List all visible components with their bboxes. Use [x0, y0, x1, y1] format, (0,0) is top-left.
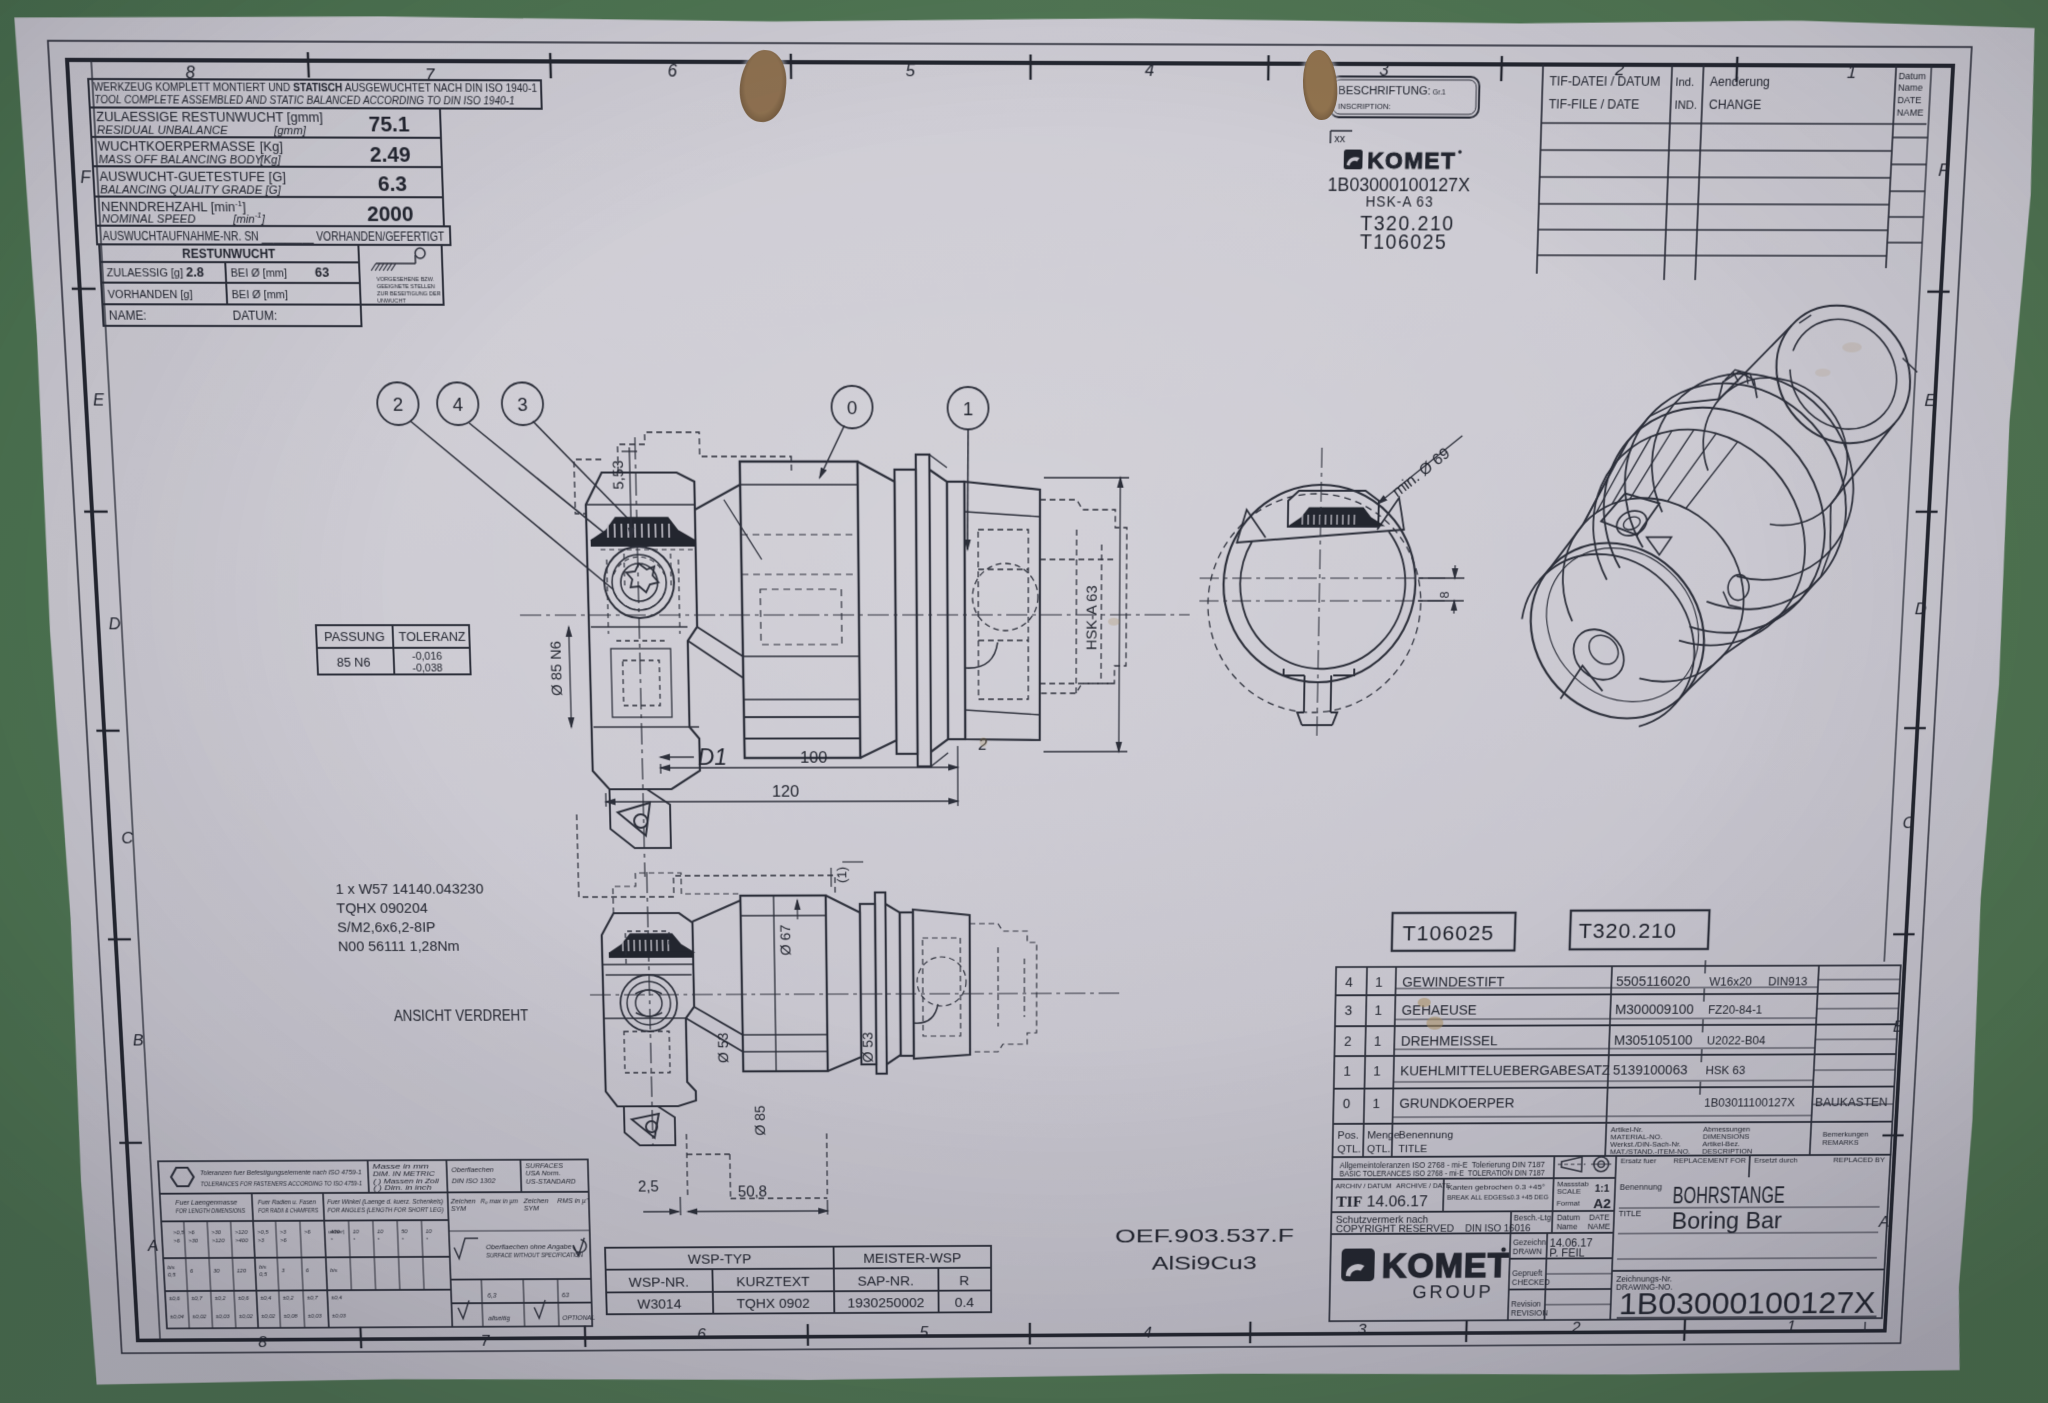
svg-text:±0,02: ±0,02	[192, 1314, 207, 1320]
svg-text:10: 10	[377, 1229, 384, 1235]
svg-text:>3: >3	[258, 1238, 265, 1244]
svg-text:FOR RADII & CHAMFERS: FOR RADII & CHAMFERS	[258, 1206, 319, 1214]
svg-text:C: C	[1902, 813, 1915, 831]
svg-text:GROUP: GROUP	[1412, 1282, 1493, 1302]
svg-text:BALANCING QUALITY GRADE [G]: BALANCING QUALITY GRADE [G]	[100, 182, 282, 196]
svg-text:4: 4	[452, 394, 463, 415]
svg-text:2: 2	[392, 394, 403, 415]
svg-text:MAT./STAND.-ITEM-NO.: MAT./STAND.-ITEM-NO.	[1610, 1147, 1691, 1156]
svg-text:IND.: IND.	[1674, 98, 1697, 112]
svg-text:BOHRSTANGE: BOHRSTANGE	[1672, 1182, 1785, 1209]
svg-text:±0,2: ±0,2	[215, 1296, 227, 1302]
svg-text:GEWINDESTIFT: GEWINDESTIFT	[1402, 975, 1505, 991]
svg-text:CHECKED: CHECKED	[1512, 1278, 1550, 1287]
svg-text:0: 0	[847, 398, 858, 419]
svg-text:min. Ø 69: min. Ø 69	[1389, 444, 1453, 501]
svg-text:FZ20-84-1: FZ20-84-1	[1708, 1003, 1763, 1017]
svg-text:10: 10	[425, 1229, 432, 1235]
svg-text:INSCRIPTION:: INSCRIPTION:	[1338, 101, 1391, 111]
svg-text:GEHAEUSE: GEHAEUSE	[1401, 1003, 1476, 1019]
svg-text:GEEIGNETE STELLEN: GEEIGNETE STELLEN	[377, 284, 435, 290]
svg-text:2: 2	[1571, 1319, 1581, 1336]
svg-text:1: 1	[1847, 62, 1857, 82]
svg-text:3: 3	[281, 1268, 285, 1274]
svg-text:5: 5	[906, 60, 916, 80]
svg-text:Boring Bar: Boring Bar	[1671, 1207, 1782, 1234]
svg-text:Ø 53: Ø 53	[716, 1033, 732, 1064]
svg-text:±0,7: ±0,7	[191, 1296, 203, 1302]
svg-text:±0,03: ±0,03	[308, 1313, 323, 1319]
svg-text:N00 56111 1,28Nm: N00 56111 1,28Nm	[338, 939, 460, 955]
svg-text:WSP-TYP: WSP-TYP	[688, 1252, 752, 1267]
svg-text:DREHMEISSEL: DREHMEISSEL	[1401, 1034, 1498, 1050]
svg-text:SAP-NR.: SAP-NR.	[858, 1274, 914, 1289]
svg-text:(1): (1)	[835, 867, 850, 883]
svg-text:±0,2: ±0,2	[283, 1295, 295, 1301]
svg-text:TIF 14.06.17: TIF 14.06.17	[1336, 1192, 1428, 1210]
svg-text:ARCHIV / DATUMARCHIVE / DATE: ARCHIV / DATUMARCHIVE / DATE	[1336, 1182, 1451, 1190]
svg-text:Oberflaechen: Oberflaechen	[451, 1166, 493, 1174]
svg-text:Aenderung: Aenderung	[1710, 74, 1771, 89]
svg-text:1 x W57 14140.043230: 1 x W57 14140.043230	[335, 881, 484, 897]
svg-text:allseitig: allseitig	[488, 1314, 510, 1322]
svg-text:°: °	[331, 1237, 334, 1243]
svg-text:1: 1	[963, 399, 973, 420]
svg-text:TOLERANZ: TOLERANZ	[398, 629, 465, 643]
svg-text:DRAWN: DRAWN	[1513, 1247, 1542, 1256]
svg-text:KUEHLMITTELUEBERGABESATZ: KUEHLMITTELUEBERGABESATZ	[1400, 1063, 1610, 1079]
svg-text:1: 1	[1374, 1034, 1382, 1049]
svg-text:2000: 2000	[367, 201, 414, 226]
svg-text:1: 1	[1343, 1064, 1351, 1079]
svg-text:0.4: 0.4	[955, 1296, 975, 1311]
svg-text:±0,08: ±0,08	[284, 1313, 299, 1319]
svg-text:°: °	[426, 1237, 429, 1243]
svg-text:R₀ max in µm: R₀ max in µm	[480, 1197, 518, 1205]
svg-text:5505116020: 5505116020	[1616, 974, 1691, 990]
svg-text:Fuer Radien u. Fasen: Fuer Radien u. Fasen	[258, 1198, 316, 1206]
svg-text:KURZTEXT: KURZTEXT	[736, 1275, 810, 1290]
svg-text:6: 6	[697, 1325, 706, 1342]
svg-text:°: °	[402, 1237, 405, 1243]
svg-text:6,3: 6,3	[487, 1291, 496, 1299]
svg-text:DATE: DATE	[1897, 95, 1922, 106]
svg-text:BEI Ø [mm]: BEI Ø [mm]	[231, 289, 288, 301]
svg-text:US-STANDARD: US-STANDARD	[526, 1177, 577, 1185]
svg-text:ueber|: ueber|	[328, 1229, 344, 1235]
svg-text:SYM: SYM	[524, 1204, 540, 1212]
svg-text:30: 30	[213, 1268, 220, 1274]
svg-text:1: 1	[1373, 1064, 1381, 1079]
svg-text:VORHANDEN [g]: VORHANDEN [g]	[108, 289, 193, 301]
svg-text:>3: >3	[280, 1229, 287, 1235]
svg-text:BEI Ø [mm] 63: BEI Ø [mm] 63	[230, 265, 330, 280]
svg-text:Geprueft: Geprueft	[1512, 1269, 1543, 1278]
svg-text:>0,5: >0,5	[257, 1229, 269, 1235]
svg-text:1: 1	[1374, 1003, 1382, 1018]
svg-text:BESCHRIFTUNG: Gr.1: BESCHRIFTUNG: Gr.1	[1338, 83, 1446, 97]
svg-text:KOMET: KOMET	[1367, 147, 1456, 174]
svg-text:xx: xx	[1334, 133, 1345, 145]
svg-text:DESCRIPTION: DESCRIPTION	[1702, 1146, 1753, 1155]
svg-text:>120: >120	[235, 1229, 248, 1235]
svg-text:6: 6	[306, 1268, 310, 1274]
svg-text:FOR LENGTH DIMENSIONS: FOR LENGTH DIMENSIONS	[175, 1207, 245, 1215]
svg-text:( ) Dim. in inch: ( ) Dim. in inch	[373, 1184, 431, 1192]
svg-text:WSP-NR.: WSP-NR.	[629, 1275, 690, 1290]
svg-text:8: 8	[258, 1333, 268, 1351]
svg-text:TITLE: TITLE	[1619, 1209, 1642, 1218]
svg-text:3: 3	[1344, 1003, 1352, 1018]
svg-text:50: 50	[401, 1229, 408, 1235]
svg-text:NOMINAL SPEED [min-1]: NOMINAL SPEED [min-1]	[101, 210, 266, 226]
svg-text:±0,02: ±0,02	[261, 1314, 276, 1320]
svg-text:TQHX 0902: TQHX 0902	[736, 1296, 809, 1311]
svg-text:HSK-A 63: HSK-A 63	[1084, 585, 1100, 650]
svg-text:Name: Name	[1898, 83, 1924, 94]
svg-text:120: 120	[772, 782, 799, 801]
svg-text:Format: Format	[1556, 1198, 1580, 1207]
svg-text:>400: >400	[235, 1238, 248, 1244]
svg-text:>6: >6	[188, 1230, 195, 1236]
svg-text:REMARKS: REMARKS	[1822, 1138, 1859, 1147]
svg-text:Menge: Menge	[1367, 1129, 1400, 1142]
svg-text:1: 1	[1375, 975, 1383, 990]
svg-text:5: 5	[920, 1323, 929, 1340]
svg-text:PASSUNG: PASSUNG	[324, 630, 385, 644]
svg-text:°: °	[353, 1237, 356, 1243]
svg-text:S/M2,6x6,2-8IP: S/M2,6x6,2-8IP	[337, 920, 436, 936]
svg-text:OEF.903.537.F: OEF.903.537.F	[1115, 1226, 1294, 1247]
svg-text:±0,6: ±0,6	[169, 1296, 181, 1302]
svg-text:8: 8	[1437, 591, 1451, 598]
svg-text:bis: bis	[330, 1268, 337, 1274]
svg-text:TIF-FILE / DATE: TIF-FILE / DATE	[1549, 96, 1640, 111]
svg-text:ZUR BESEITIGUNG DER: ZUR BESEITIGUNG DER	[377, 291, 441, 297]
svg-text:U2022-B04: U2022-B04	[1707, 1034, 1766, 1048]
svg-text:ZULAESSIG [g] 2.8: ZULAESSIG [g] 2.8	[106, 264, 205, 279]
svg-text:±0,4: ±0,4	[331, 1295, 343, 1301]
svg-text:1B03000100127X: 1B03000100127X	[1327, 174, 1470, 196]
svg-text:Kanten gebrochen 0.3 +45°: Kanten gebrochen 0.3 +45°	[1447, 1183, 1545, 1191]
svg-text:T106025: T106025	[1402, 921, 1494, 946]
svg-text:±0,03: ±0,03	[216, 1314, 231, 1320]
svg-text:75.1: 75.1	[368, 111, 410, 136]
svg-text:±0,04: ±0,04	[170, 1314, 185, 1320]
svg-text:NAME: NAME	[1896, 108, 1924, 119]
svg-text:2,5: 2,5	[638, 1178, 659, 1195]
svg-text:1B03011100127X: 1B03011100127X	[1704, 1096, 1796, 1110]
svg-text:R: R	[959, 1274, 969, 1289]
svg-text:Gezeichn: Gezeichn	[1513, 1238, 1546, 1247]
svg-text:REPLACED BY: REPLACED BY	[1833, 1155, 1885, 1164]
svg-text:±0,4: ±0,4	[260, 1295, 272, 1301]
svg-text:Ø 85 N6: Ø 85 N6	[548, 641, 565, 696]
svg-text:6: 6	[190, 1268, 194, 1274]
svg-text:BASIC TOLERANCES ISO 2768 - mi: BASIC TOLERANCES ISO 2768 - mi-E TOLERAT…	[1339, 1168, 1544, 1178]
svg-text:Revision: Revision	[1511, 1300, 1541, 1309]
svg-text:Oberflaechen ohne Angabe: Oberflaechen ohne Angabe	[486, 1243, 572, 1251]
svg-text:10: 10	[353, 1229, 360, 1235]
svg-text:OPTIONAL: OPTIONAL	[562, 1314, 595, 1322]
svg-text:4: 4	[1143, 1324, 1152, 1341]
svg-text:±0,6: ±0,6	[238, 1295, 250, 1301]
svg-text:Ind.: Ind.	[1675, 75, 1694, 89]
svg-text:4: 4	[1145, 60, 1155, 80]
svg-text:±0,02: ±0,02	[239, 1314, 254, 1320]
svg-text:bis: bis	[259, 1264, 266, 1270]
svg-text:Ersetzt durch: Ersetzt durch	[1754, 1155, 1798, 1164]
svg-text:-0,016: -0,016	[412, 651, 443, 662]
svg-text:2.49: 2.49	[369, 142, 411, 167]
svg-text:SCALE: SCALE	[1557, 1187, 1582, 1196]
svg-text:1: 1	[1372, 1096, 1380, 1111]
svg-text:MEISTER-WSP: MEISTER-WSP	[863, 1251, 961, 1266]
svg-text:Fuer Laengenmasse: Fuer Laengenmasse	[175, 1198, 238, 1206]
svg-text:1:1: 1:1	[1595, 1184, 1611, 1195]
svg-text:5,53: 5,53	[611, 460, 628, 489]
svg-text:bis: bis	[167, 1265, 174, 1271]
svg-text:±0,03: ±0,03	[332, 1313, 347, 1319]
svg-text:>30: >30	[188, 1238, 198, 1244]
svg-text:NameNAME: NameNAME	[1557, 1222, 1611, 1231]
svg-text:>6: >6	[173, 1238, 180, 1244]
svg-text:C: C	[121, 829, 134, 848]
svg-text:CHANGE: CHANGE	[1709, 97, 1762, 112]
svg-text:NAME:: NAME:	[109, 309, 147, 323]
svg-text:A2: A2	[1593, 1197, 1611, 1212]
svg-text:RMS in µ": RMS in µ"	[557, 1197, 590, 1205]
svg-text:T320.210: T320.210	[1578, 919, 1677, 944]
svg-text:FOR ANGLES (LENGTH FOR SHORT L: FOR ANGLES (LENGTH FOR SHORT LEG)	[327, 1206, 444, 1215]
svg-text:1930250002: 1930250002	[847, 1296, 924, 1311]
svg-text:7: 7	[481, 1332, 491, 1349]
svg-text:50,8: 50,8	[738, 1183, 767, 1200]
svg-text:HSK-A 63: HSK-A 63	[1365, 195, 1433, 211]
svg-text:100: 100	[800, 748, 827, 767]
svg-text:Benennung: Benennung	[1620, 1183, 1663, 1192]
svg-text:±0,7: ±0,7	[307, 1295, 319, 1301]
svg-text:UNWUCHT: UNWUCHT	[377, 299, 406, 305]
svg-text:M300009100: M300009100	[1615, 1002, 1694, 1018]
svg-text:REVISION: REVISION	[1511, 1309, 1548, 1318]
svg-text:Datum: Datum	[1898, 71, 1926, 82]
svg-text:E: E	[1924, 390, 1936, 409]
svg-text:D: D	[1915, 599, 1928, 618]
svg-text:DATUM:: DATUM:	[232, 309, 277, 323]
svg-text:HSK 63: HSK 63	[1705, 1063, 1745, 1077]
svg-text:63: 63	[562, 1291, 569, 1299]
svg-text:>6: >6	[304, 1229, 311, 1235]
svg-text:RESTUNWUCHT: RESTUNWUCHT	[182, 247, 276, 261]
svg-text:Toleranzen fuer Befestigungsel: Toleranzen fuer Befestigungselemente nac…	[200, 1168, 362, 1177]
svg-text:Benennung: Benennung	[1399, 1128, 1454, 1141]
svg-text:B: B	[132, 1031, 144, 1049]
svg-text:TITLE: TITLE	[1398, 1142, 1427, 1155]
svg-text:W3014: W3014	[637, 1297, 682, 1312]
svg-text:BAUKASTEN: BAUKASTEN	[1815, 1095, 1888, 1109]
svg-text:Ø 85: Ø 85	[753, 1105, 769, 1136]
svg-text:>120: >120	[212, 1238, 225, 1244]
svg-text:SURFACE WITHOUT SPECIFICATION: SURFACE WITHOUT SPECIFICATION	[486, 1251, 584, 1259]
svg-text:A: A	[146, 1237, 158, 1255]
svg-text:Fuer Winkel (Laenge d. kuerz.: Fuer Winkel (Laenge d. kuerz. Schenkels)	[327, 1197, 444, 1206]
svg-text:P. FEIL: P. FEIL	[1549, 1247, 1585, 1259]
svg-text:DIN ISO 1302: DIN ISO 1302	[452, 1177, 497, 1185]
svg-text:VORGESEHENE BZW.: VORGESEHENE BZW.	[376, 277, 434, 283]
svg-text:USA Norm.: USA Norm.	[525, 1169, 560, 1177]
svg-text:>0,5: >0,5	[173, 1230, 185, 1236]
svg-text:T106025: T106025	[1360, 231, 1448, 254]
svg-text:120: 120	[237, 1268, 247, 1274]
svg-text:TOOL COMPLETE ASSEMBLED AND ST: TOOL COMPLETE ASSEMBLED AND STATIC BALAN…	[94, 95, 515, 107]
svg-text:>6: >6	[280, 1238, 287, 1244]
svg-text:QTL.: QTL.	[1367, 1143, 1391, 1156]
svg-text:0,5: 0,5	[168, 1272, 177, 1278]
svg-text:85 N6: 85 N6	[337, 655, 371, 669]
svg-text:SYM: SYM	[451, 1205, 467, 1213]
svg-text:6.3: 6.3	[377, 171, 407, 196]
svg-text:F: F	[80, 167, 93, 187]
svg-text:REPLACEMENT FOR: REPLACEMENT FOR	[1673, 1156, 1746, 1165]
svg-text:MASS OFF BALANCING BODY [Kg]: MASS OFF BALANCING BODY [Kg]	[98, 152, 282, 167]
svg-text:0: 0	[1343, 1097, 1351, 1112]
svg-text:Ø 53: Ø 53	[861, 1032, 877, 1062]
svg-text:TQHX 090204: TQHX 090204	[336, 901, 428, 917]
svg-text:Ersatz fuer: Ersatz fuer	[1621, 1156, 1657, 1165]
svg-text:6: 6	[667, 60, 677, 80]
svg-text:0,5: 0,5	[259, 1272, 268, 1278]
svg-text:W16x20 DIN913: W16x20 DIN913	[1709, 975, 1808, 989]
svg-text:BREAK ALL EDGES≤0.3 +45 DEG: BREAK ALL EDGES≤0.3 +45 DEG	[1447, 1193, 1549, 1201]
svg-text:Pos.: Pos.	[1337, 1129, 1359, 1142]
svg-text:E: E	[93, 390, 105, 410]
svg-text:3: 3	[1358, 1321, 1367, 1338]
svg-text:D: D	[108, 614, 121, 633]
svg-text:>30: >30	[211, 1230, 221, 1236]
svg-text:Ø 67: Ø 67	[778, 925, 794, 956]
svg-text:ANSICHT VERDREHT: ANSICHT VERDREHT	[394, 1006, 529, 1025]
svg-text:TOLERANCES FOR FASTENERS ACCOR: TOLERANCES FOR FASTENERS ACCORDING TO IS…	[200, 1179, 362, 1188]
svg-text:5139100063: 5139100063	[1613, 1063, 1688, 1078]
svg-text:-0,038: -0,038	[412, 663, 443, 674]
svg-text:M305105100: M305105100	[1614, 1033, 1693, 1049]
svg-text:WERKZEUG KOMPLETT MONTIERT UND: WERKZEUG KOMPLETT MONTIERT UND STATISCH …	[93, 79, 537, 95]
svg-text:DatumDATE: DatumDATE	[1557, 1213, 1610, 1222]
svg-text:QTL.: QTL.	[1337, 1143, 1361, 1156]
svg-text:COPYRIGHT RESERVEDDIN ISO 1601: COPYRIGHT RESERVEDDIN ISO 16016	[1336, 1223, 1531, 1234]
svg-text:AUSWUCHTAUFNAHME-NR. SN ______: AUSWUCHTAUFNAHME-NR. SN _________ VORHAN…	[102, 229, 445, 244]
svg-text:TIF-DATEI / DATUM: TIF-DATEI / DATUM	[1549, 73, 1660, 88]
svg-text:GRUNDKOERPER: GRUNDKOERPER	[1399, 1096, 1514, 1112]
svg-text:Besch.-Ltg: Besch.-Ltg	[1514, 1213, 1552, 1222]
svg-text:KOMET: KOMET	[1381, 1247, 1509, 1285]
svg-text:RESIDUAL UNBALANCE [gmm]: RESIDUAL UNBALANCE [gmm]	[97, 123, 307, 138]
svg-text:4: 4	[1345, 975, 1353, 990]
svg-text:3: 3	[517, 394, 528, 415]
svg-text:D1: D1	[697, 744, 727, 770]
svg-text:AlSi9Cu3: AlSi9Cu3	[1152, 1253, 1257, 1274]
svg-text:°: °	[377, 1237, 380, 1243]
svg-text:2: 2	[1344, 1034, 1352, 1049]
